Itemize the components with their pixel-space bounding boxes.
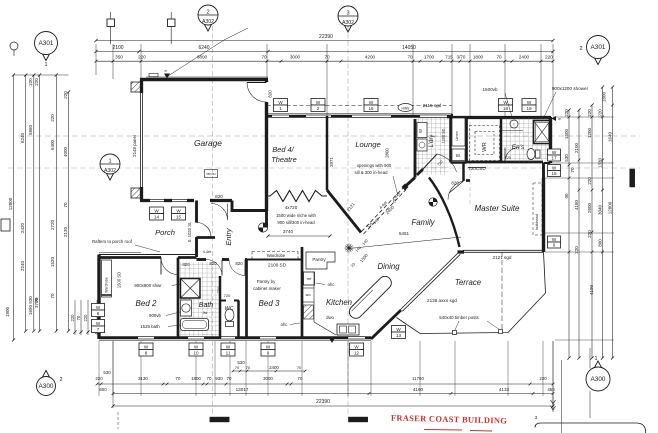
svg-text:A301: A301 bbox=[39, 40, 54, 47]
svg-text:3130: 3130 bbox=[138, 376, 148, 381]
svg-text:11: 11 bbox=[226, 351, 231, 356]
svg-text:15: 15 bbox=[176, 215, 182, 220]
svg-text:1500 SD: 1500 SD bbox=[117, 272, 122, 288]
svg-text:3: 3 bbox=[346, 11, 349, 17]
svg-text:2100 SD: 2100 SD bbox=[268, 263, 287, 268]
svg-text:9: 9 bbox=[267, 351, 270, 356]
svg-text:L’dry: L’dry bbox=[429, 135, 435, 148]
svg-text:W: W bbox=[154, 208, 159, 213]
svg-text:1900: 1900 bbox=[5, 306, 10, 317]
svg-text:820: 820 bbox=[209, 261, 217, 266]
svg-text:2: 2 bbox=[59, 377, 62, 383]
svg-text:9w: 9w bbox=[203, 311, 208, 315]
svg-text:350: 350 bbox=[115, 55, 123, 60]
svg-text:2: 2 bbox=[206, 10, 209, 16]
svg-text:W: W bbox=[354, 344, 359, 349]
svg-text:1500 wide niche with: 1500 wide niche with bbox=[276, 213, 317, 218]
svg-text:930: 930 bbox=[28, 296, 33, 304]
svg-text:6800: 6800 bbox=[197, 55, 208, 60]
svg-text:4x720: 4x720 bbox=[285, 205, 298, 210]
svg-text:70: 70 bbox=[207, 376, 212, 381]
svg-text:3740: 3740 bbox=[283, 229, 294, 234]
svg-text:3040: 3040 bbox=[598, 204, 603, 215]
svg-text:3000: 3000 bbox=[290, 55, 301, 60]
svg-text:70: 70 bbox=[407, 55, 413, 60]
svg-text:70: 70 bbox=[496, 55, 502, 60]
svg-text:Linen: Linen bbox=[454, 131, 459, 141]
svg-text:1800: 1800 bbox=[473, 55, 484, 60]
svg-text:220: 220 bbox=[574, 246, 579, 254]
svg-text:3971: 3971 bbox=[329, 157, 334, 167]
svg-text:220: 220 bbox=[587, 109, 592, 117]
svg-text:W: W bbox=[96, 321, 101, 326]
svg-text:Wardrobe: Wardrobe bbox=[105, 277, 109, 293]
svg-text:W: W bbox=[144, 344, 149, 349]
svg-text:W: W bbox=[418, 129, 423, 133]
svg-text:820: 820 bbox=[268, 90, 273, 98]
svg-text:8: 8 bbox=[145, 351, 148, 356]
svg-text:720: 720 bbox=[505, 156, 511, 160]
svg-text:3/70: 3/70 bbox=[457, 55, 466, 60]
svg-text:1: 1 bbox=[44, 62, 47, 68]
svg-text:70: 70 bbox=[50, 293, 55, 299]
svg-text:4180: 4180 bbox=[574, 199, 579, 210]
svg-text:1: 1 bbox=[594, 356, 597, 362]
svg-text:W: W bbox=[226, 344, 231, 349]
svg-text:1260 SD: 1260 SD bbox=[442, 128, 446, 143]
svg-text:13017: 13017 bbox=[236, 387, 249, 392]
svg-text:220: 220 bbox=[63, 91, 68, 99]
svg-text:530: 530 bbox=[564, 154, 569, 162]
svg-text:ohc: ohc bbox=[281, 322, 288, 327]
svg-text:70: 70 bbox=[63, 202, 68, 208]
svg-text:220: 220 bbox=[539, 376, 547, 381]
svg-text:12800: 12800 bbox=[608, 201, 613, 214]
svg-text:Family: Family bbox=[412, 218, 436, 227]
svg-text:2400: 2400 bbox=[269, 365, 279, 370]
svg-text:Bath: Bath bbox=[199, 302, 214, 309]
svg-text:22390: 22390 bbox=[319, 34, 333, 40]
svg-text:W: W bbox=[194, 344, 199, 349]
svg-text:HWS: HWS bbox=[402, 107, 411, 111]
svg-text:22390: 22390 bbox=[316, 399, 330, 405]
svg-text:70: 70 bbox=[176, 376, 181, 381]
svg-text:12: 12 bbox=[354, 351, 360, 356]
svg-text:220: 220 bbox=[50, 114, 55, 122]
svg-text:720: 720 bbox=[224, 293, 231, 298]
svg-text:820: 820 bbox=[235, 261, 243, 266]
svg-text:220: 220 bbox=[34, 78, 39, 86]
svg-text:A302: A302 bbox=[104, 168, 116, 174]
svg-text:1640: 1640 bbox=[608, 131, 613, 142]
svg-text:13: 13 bbox=[396, 333, 402, 338]
svg-text:2115 sgd: 2115 sgd bbox=[423, 103, 442, 108]
svg-text:2100: 2100 bbox=[112, 45, 123, 51]
svg-text:450: 450 bbox=[547, 387, 555, 392]
svg-text:580 MH: 580 MH bbox=[206, 172, 215, 176]
svg-text:18: 18 bbox=[503, 106, 509, 111]
svg-text:1: 1 bbox=[108, 159, 111, 165]
svg-text:Bed 3: Bed 3 bbox=[259, 299, 280, 308]
svg-text:Lounge: Lounge bbox=[355, 140, 380, 149]
svg-text:4133: 4133 bbox=[499, 387, 510, 392]
svg-text:A302: A302 bbox=[342, 20, 354, 26]
svg-text:220: 220 bbox=[95, 376, 103, 381]
svg-text:S. 1020 SL: S. 1020 SL bbox=[187, 221, 192, 242]
svg-text:12800: 12800 bbox=[8, 197, 13, 210]
svg-text:Porch: Porch bbox=[155, 228, 175, 237]
svg-text:70: 70 bbox=[34, 297, 39, 303]
svg-text:70: 70 bbox=[76, 315, 81, 320]
svg-text:930: 930 bbox=[215, 376, 223, 381]
svg-text:220: 220 bbox=[83, 314, 88, 322]
svg-text:820: 820 bbox=[215, 194, 223, 199]
svg-text:2: 2 bbox=[579, 46, 582, 52]
svg-text:Wardrobe: Wardrobe bbox=[267, 253, 286, 258]
svg-text:2800: 2800 bbox=[385, 148, 390, 158]
svg-text:220: 220 bbox=[587, 230, 592, 238]
svg-text:W: W bbox=[266, 344, 271, 349]
svg-text:1700: 1700 bbox=[424, 55, 435, 60]
svg-text:800: 800 bbox=[598, 239, 603, 247]
svg-text:W: W bbox=[552, 165, 557, 170]
svg-text:6: 6 bbox=[97, 311, 100, 316]
svg-text:6400: 6400 bbox=[50, 139, 55, 150]
svg-text:4.4et: 4.4et bbox=[203, 250, 212, 254]
svg-text:220: 220 bbox=[598, 109, 603, 117]
svg-text:6: 6 bbox=[553, 243, 556, 248]
svg-text:1650: 1650 bbox=[28, 304, 33, 315]
svg-text:Theatre: Theatre bbox=[271, 155, 296, 164]
svg-text:2600: 2600 bbox=[587, 202, 592, 213]
svg-text:70: 70 bbox=[261, 55, 267, 60]
svg-text:17: 17 bbox=[551, 156, 557, 161]
svg-text:cabinet maker: cabinet maker bbox=[253, 286, 281, 291]
svg-text:W: W bbox=[369, 100, 374, 105]
svg-text:15: 15 bbox=[551, 171, 557, 176]
svg-text:220: 220 bbox=[545, 55, 553, 60]
svg-text:W: W bbox=[316, 100, 321, 105]
svg-text:530: 530 bbox=[103, 370, 111, 375]
svg-text:A300: A300 bbox=[39, 383, 54, 390]
svg-text:2: 2 bbox=[317, 106, 320, 111]
svg-text:1330: 1330 bbox=[598, 157, 603, 168]
svg-text:220: 220 bbox=[70, 314, 75, 322]
svg-text:2240: 2240 bbox=[20, 260, 25, 271]
svg-text:3000: 3000 bbox=[263, 376, 273, 381]
svg-text:820: 820 bbox=[451, 181, 459, 186]
svg-text:Bed 2: Bed 2 bbox=[136, 299, 157, 308]
svg-text:5860: 5860 bbox=[28, 124, 33, 135]
svg-text:2420: 2420 bbox=[20, 222, 25, 233]
svg-text:4190: 4190 bbox=[589, 284, 594, 295]
svg-text:dwo: dwo bbox=[326, 315, 334, 320]
svg-text:A302: A302 bbox=[202, 19, 214, 25]
svg-text:11760: 11760 bbox=[412, 376, 424, 381]
svg-text:900 sill/300 in-head: 900 sill/300 in-head bbox=[277, 220, 315, 225]
svg-text:70: 70 bbox=[298, 376, 303, 381]
svg-text:Entry: Entry bbox=[224, 227, 233, 246]
svg-text:16: 16 bbox=[368, 106, 374, 111]
svg-text:1800: 1800 bbox=[191, 376, 201, 381]
svg-text:2130: 2130 bbox=[63, 226, 68, 237]
svg-text:sill & 300 in-head: sill & 300 in-head bbox=[355, 170, 389, 175]
svg-text:1800: 1800 bbox=[602, 91, 607, 102]
svg-text:70: 70 bbox=[246, 365, 251, 370]
svg-text:W: W bbox=[552, 237, 557, 242]
svg-text:14050: 14050 bbox=[402, 45, 416, 51]
svg-text:Br.: Br. bbox=[456, 153, 461, 158]
svg-text:openings with 900: openings with 900 bbox=[357, 163, 392, 168]
svg-text:70: 70 bbox=[227, 376, 232, 381]
svg-text:5461: 5461 bbox=[399, 231, 410, 236]
svg-text:7: 7 bbox=[97, 327, 100, 332]
svg-text:10: 10 bbox=[193, 351, 199, 356]
svg-text:W: W bbox=[396, 327, 401, 332]
svg-text:Terrace: Terrace bbox=[455, 278, 482, 287]
svg-text:9: 9 bbox=[164, 70, 168, 72]
svg-text:70: 70 bbox=[297, 365, 302, 370]
svg-text:6240: 6240 bbox=[20, 132, 25, 143]
svg-text:4200: 4200 bbox=[365, 55, 376, 60]
svg-text:1: 1 bbox=[279, 106, 282, 111]
svg-text:70: 70 bbox=[570, 167, 575, 173]
svg-text:2720: 2720 bbox=[50, 219, 55, 230]
svg-text:Rafters to porch roof: Rafters to porch roof bbox=[92, 239, 133, 244]
svg-text:ohc: ohc bbox=[328, 282, 335, 287]
svg-text:1200: 1200 bbox=[587, 127, 592, 138]
svg-text:WC: WC bbox=[225, 306, 234, 312]
svg-text:W: W bbox=[527, 100, 532, 105]
svg-text:2100: 2100 bbox=[574, 142, 579, 153]
svg-text:1500vb: 1500vb bbox=[482, 87, 498, 92]
svg-text:540x40 timber posts: 540x40 timber posts bbox=[439, 315, 479, 320]
svg-text:1525 bath: 1525 bath bbox=[140, 324, 160, 329]
svg-text:4190: 4190 bbox=[413, 387, 424, 392]
svg-text:Kitchen: Kitchen bbox=[326, 298, 352, 307]
svg-text:2136 axxo sgd: 2136 axxo sgd bbox=[427, 298, 457, 303]
svg-text:W: W bbox=[96, 305, 101, 310]
svg-text:900vb: 900vb bbox=[149, 313, 162, 318]
svg-text:bulkhead: bulkhead bbox=[535, 214, 539, 229]
svg-text:Pantry: Pantry bbox=[312, 257, 326, 262]
svg-text:WR: WR bbox=[482, 142, 488, 152]
svg-text:19: 19 bbox=[526, 106, 532, 111]
svg-text:A301: A301 bbox=[591, 44, 606, 51]
svg-text:4000: 4000 bbox=[63, 146, 68, 157]
svg-text:W: W bbox=[278, 100, 283, 105]
svg-text:1520: 1520 bbox=[50, 256, 55, 267]
svg-text:W: W bbox=[176, 208, 181, 213]
svg-text:14: 14 bbox=[154, 215, 160, 220]
svg-text:Master Suite: Master Suite bbox=[475, 204, 520, 213]
svg-text:Dining: Dining bbox=[377, 262, 400, 271]
svg-text:W: W bbox=[552, 150, 557, 155]
svg-text:900x1200 shower: 900x1200 shower bbox=[552, 86, 589, 91]
svg-text:220: 220 bbox=[28, 78, 33, 86]
svg-text:220: 220 bbox=[564, 109, 569, 117]
svg-text:Pantry by: Pantry by bbox=[257, 279, 276, 284]
svg-text:A300: A300 bbox=[591, 376, 606, 383]
svg-text:Garage: Garage bbox=[194, 138, 222, 148]
svg-text:900x900 shwr: 900x900 shwr bbox=[134, 283, 162, 288]
svg-text:90: 90 bbox=[564, 193, 569, 199]
svg-text:720CSD: 720CSD bbox=[468, 166, 486, 171]
svg-text:2148 panel: 2148 panel bbox=[132, 135, 137, 157]
svg-text:Bed 4/: Bed 4/ bbox=[272, 145, 294, 154]
svg-text:1500: 1500 bbox=[564, 128, 569, 139]
svg-text:220: 220 bbox=[138, 55, 146, 60]
svg-text:70: 70 bbox=[235, 365, 240, 370]
svg-text:2400: 2400 bbox=[519, 55, 530, 60]
svg-text:wo: wo bbox=[305, 292, 311, 297]
svg-text:600: 600 bbox=[99, 387, 107, 392]
